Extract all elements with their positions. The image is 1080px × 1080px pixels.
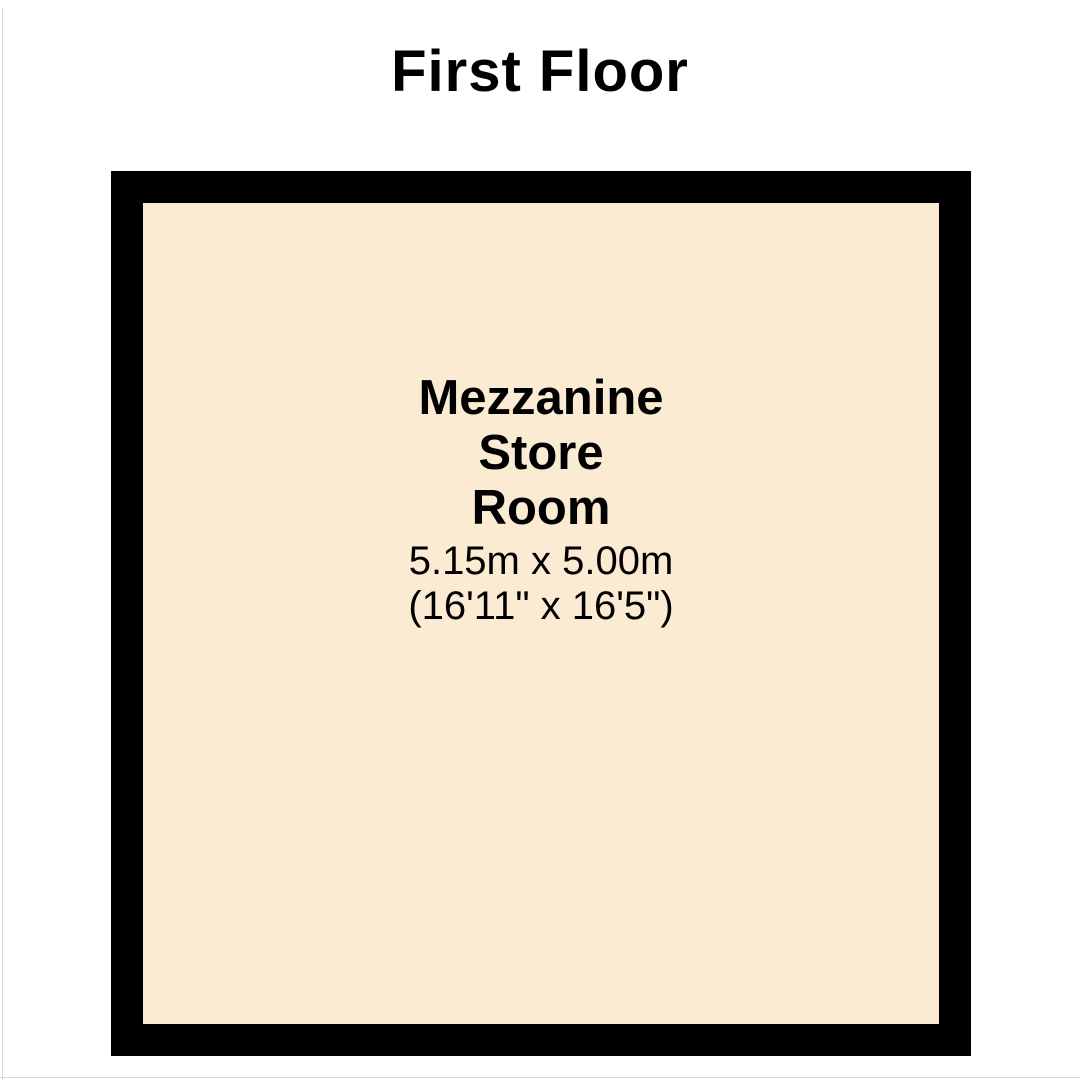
room-name-line-2: Store	[143, 426, 939, 481]
room-label: Mezzanine Store Room 5.15m x 5.00m (16'1…	[143, 371, 939, 629]
room-dimensions-imperial: (16'11" x 16'5")	[143, 584, 939, 629]
frame-edge-bottom	[0, 1077, 1080, 1078]
room-dimensions: 5.15m x 5.00m (16'11" x 16'5")	[143, 539, 939, 629]
room-name-line-3: Room	[143, 481, 939, 536]
floorplan-page: First Floor Mezzanine Store Room 5.15m x…	[0, 0, 1080, 1080]
room-name-line-1: Mezzanine	[143, 371, 939, 426]
frame-edge-left	[2, 8, 3, 1080]
floor-title: First Floor	[0, 40, 1080, 104]
room-dimensions-metric: 5.15m x 5.00m	[143, 539, 939, 584]
room-mezzanine-store: Mezzanine Store Room 5.15m x 5.00m (16'1…	[111, 171, 971, 1056]
room-name: Mezzanine Store Room	[143, 371, 939, 536]
